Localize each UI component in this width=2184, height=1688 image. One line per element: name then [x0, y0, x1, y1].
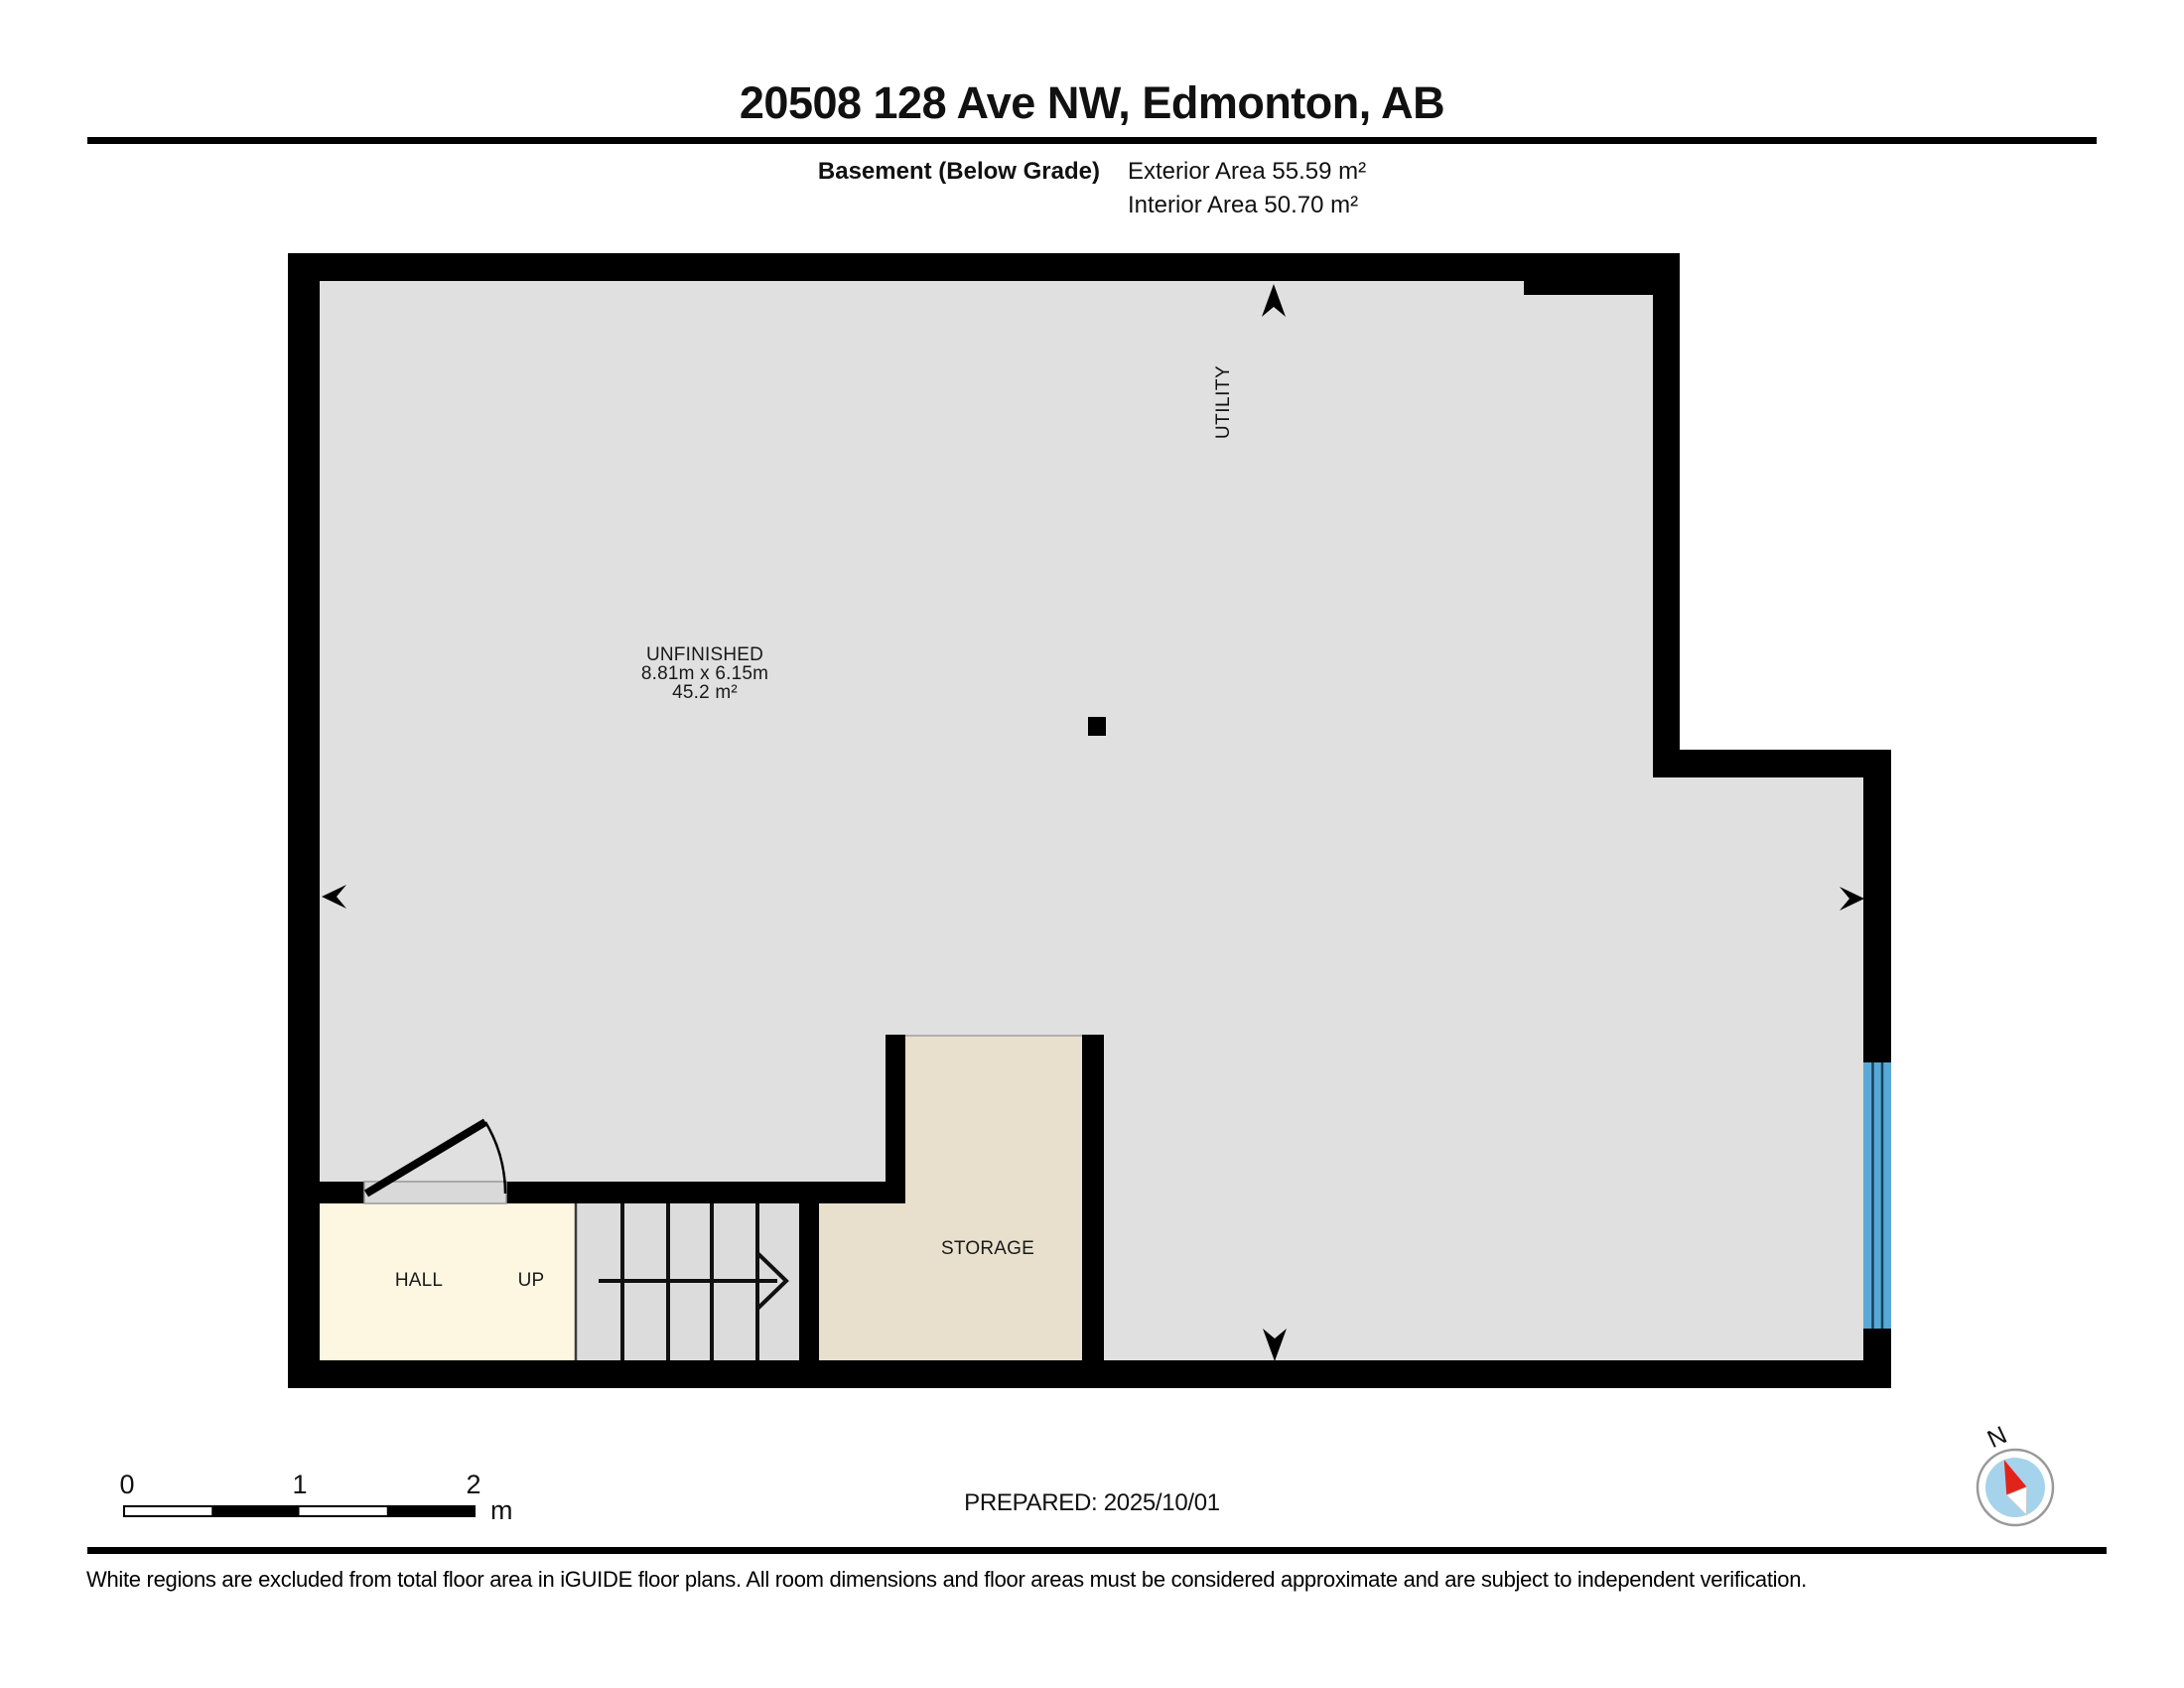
unfinished-room-area: 45.2 m²	[506, 683, 903, 702]
window-glass	[1863, 1062, 1891, 1329]
floor-label: Basement (Below Grade)	[818, 155, 1100, 189]
unfinished-room-label: UNFINISHED 8.81m x 6.15m 45.2 m²	[506, 645, 903, 702]
floor-summary: Basement (Below Grade) Exterior Area 55.…	[0, 155, 2184, 222]
window-top-cap	[1863, 1056, 1891, 1062]
interior-area: Interior Area 50.70 m²	[1128, 189, 1366, 222]
storage-room-label: STORAGE	[888, 1239, 1087, 1258]
wall-right-upper	[1653, 253, 1680, 750]
prepared-date: PREPARED: 2025/10/01	[0, 1489, 2184, 1517]
wall-step-out	[1653, 750, 1891, 777]
wall-top	[288, 253, 1680, 281]
utility-room-name: UTILITY	[1213, 365, 1235, 439]
window	[1863, 1056, 1891, 1335]
page-title: 20508 128 Ave NW, Edmonton, AB	[0, 77, 2184, 129]
wall-hall-stairs-top	[506, 1182, 887, 1203]
unfinished-floor-right-extension	[1653, 777, 1863, 1360]
wall-left	[288, 253, 320, 1388]
window-bottom-cap	[1863, 1329, 1891, 1335]
wall-stairs-right	[799, 1182, 819, 1360]
footer-divider	[87, 1547, 2107, 1554]
wall-bottom	[288, 1360, 1891, 1388]
exterior-area: Exterior Area 55.59 m²	[1128, 155, 1366, 189]
disclaimer-text: White regions are excluded from total fl…	[86, 1567, 2144, 1593]
hall-room-label: HALL	[349, 1271, 488, 1290]
utility-marker-square	[1088, 717, 1106, 736]
floorplan-drawing	[0, 0, 2184, 1688]
wall-storage-left	[886, 1035, 905, 1203]
floor-areas: Exterior Area 55.59 m² Interior Area 50.…	[1128, 155, 1366, 222]
stairs-up-label: UP	[491, 1271, 571, 1290]
unfinished-room-dimensions: 8.81m x 6.15m	[506, 664, 903, 683]
wall-storage-right	[1082, 1035, 1104, 1360]
header-divider	[87, 137, 2097, 144]
wall-hall-top-left	[288, 1182, 364, 1203]
floorplan-page: 20508 128 Ave NW, Edmonton, AB Basement …	[0, 0, 2184, 1688]
unfinished-room-name: UNFINISHED	[506, 645, 903, 664]
wall-top-right-notch	[1524, 281, 1653, 295]
